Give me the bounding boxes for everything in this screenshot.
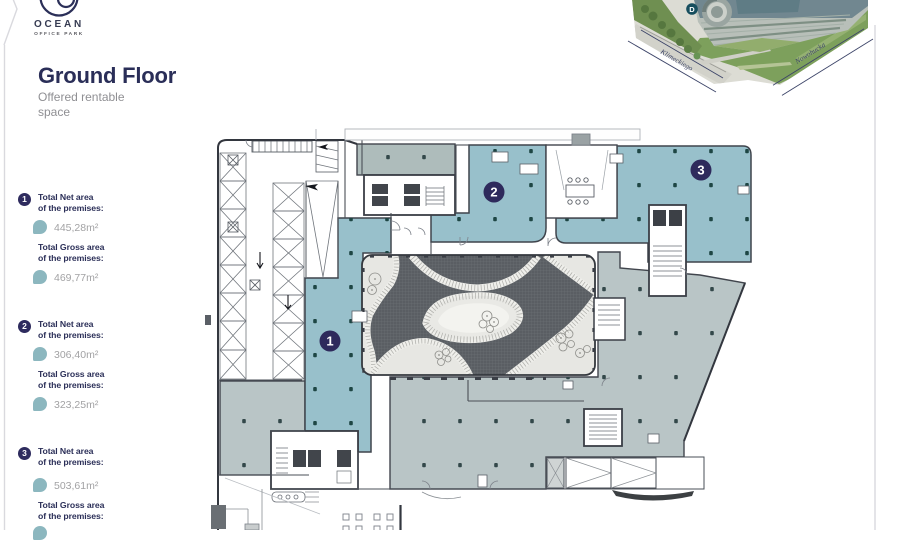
svg-text:3: 3: [697, 163, 704, 178]
svg-text:2: 2: [490, 185, 497, 200]
svg-text:1: 1: [326, 334, 333, 349]
svg-text:D: D: [689, 5, 695, 14]
